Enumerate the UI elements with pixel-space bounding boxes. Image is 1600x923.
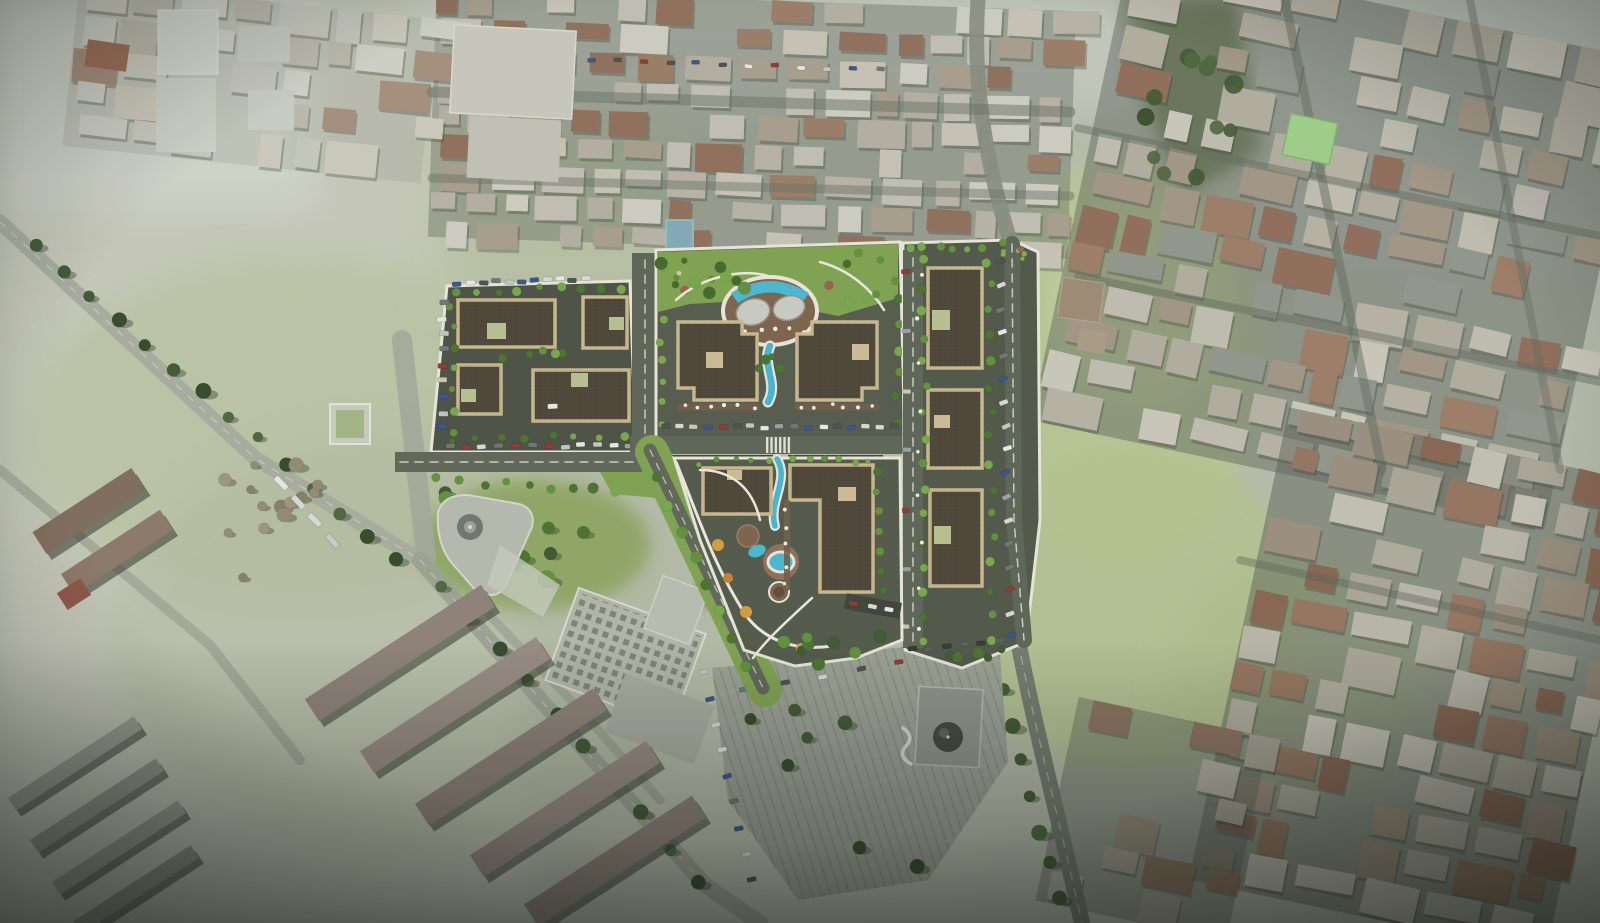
aerial-view-stage [0, 0, 1600, 923]
aerial-photo [0, 0, 1600, 923]
tone-unify [0, 0, 1600, 923]
site-plan-aerial-svg [0, 0, 1600, 923]
scene-layers [0, 0, 1600, 923]
